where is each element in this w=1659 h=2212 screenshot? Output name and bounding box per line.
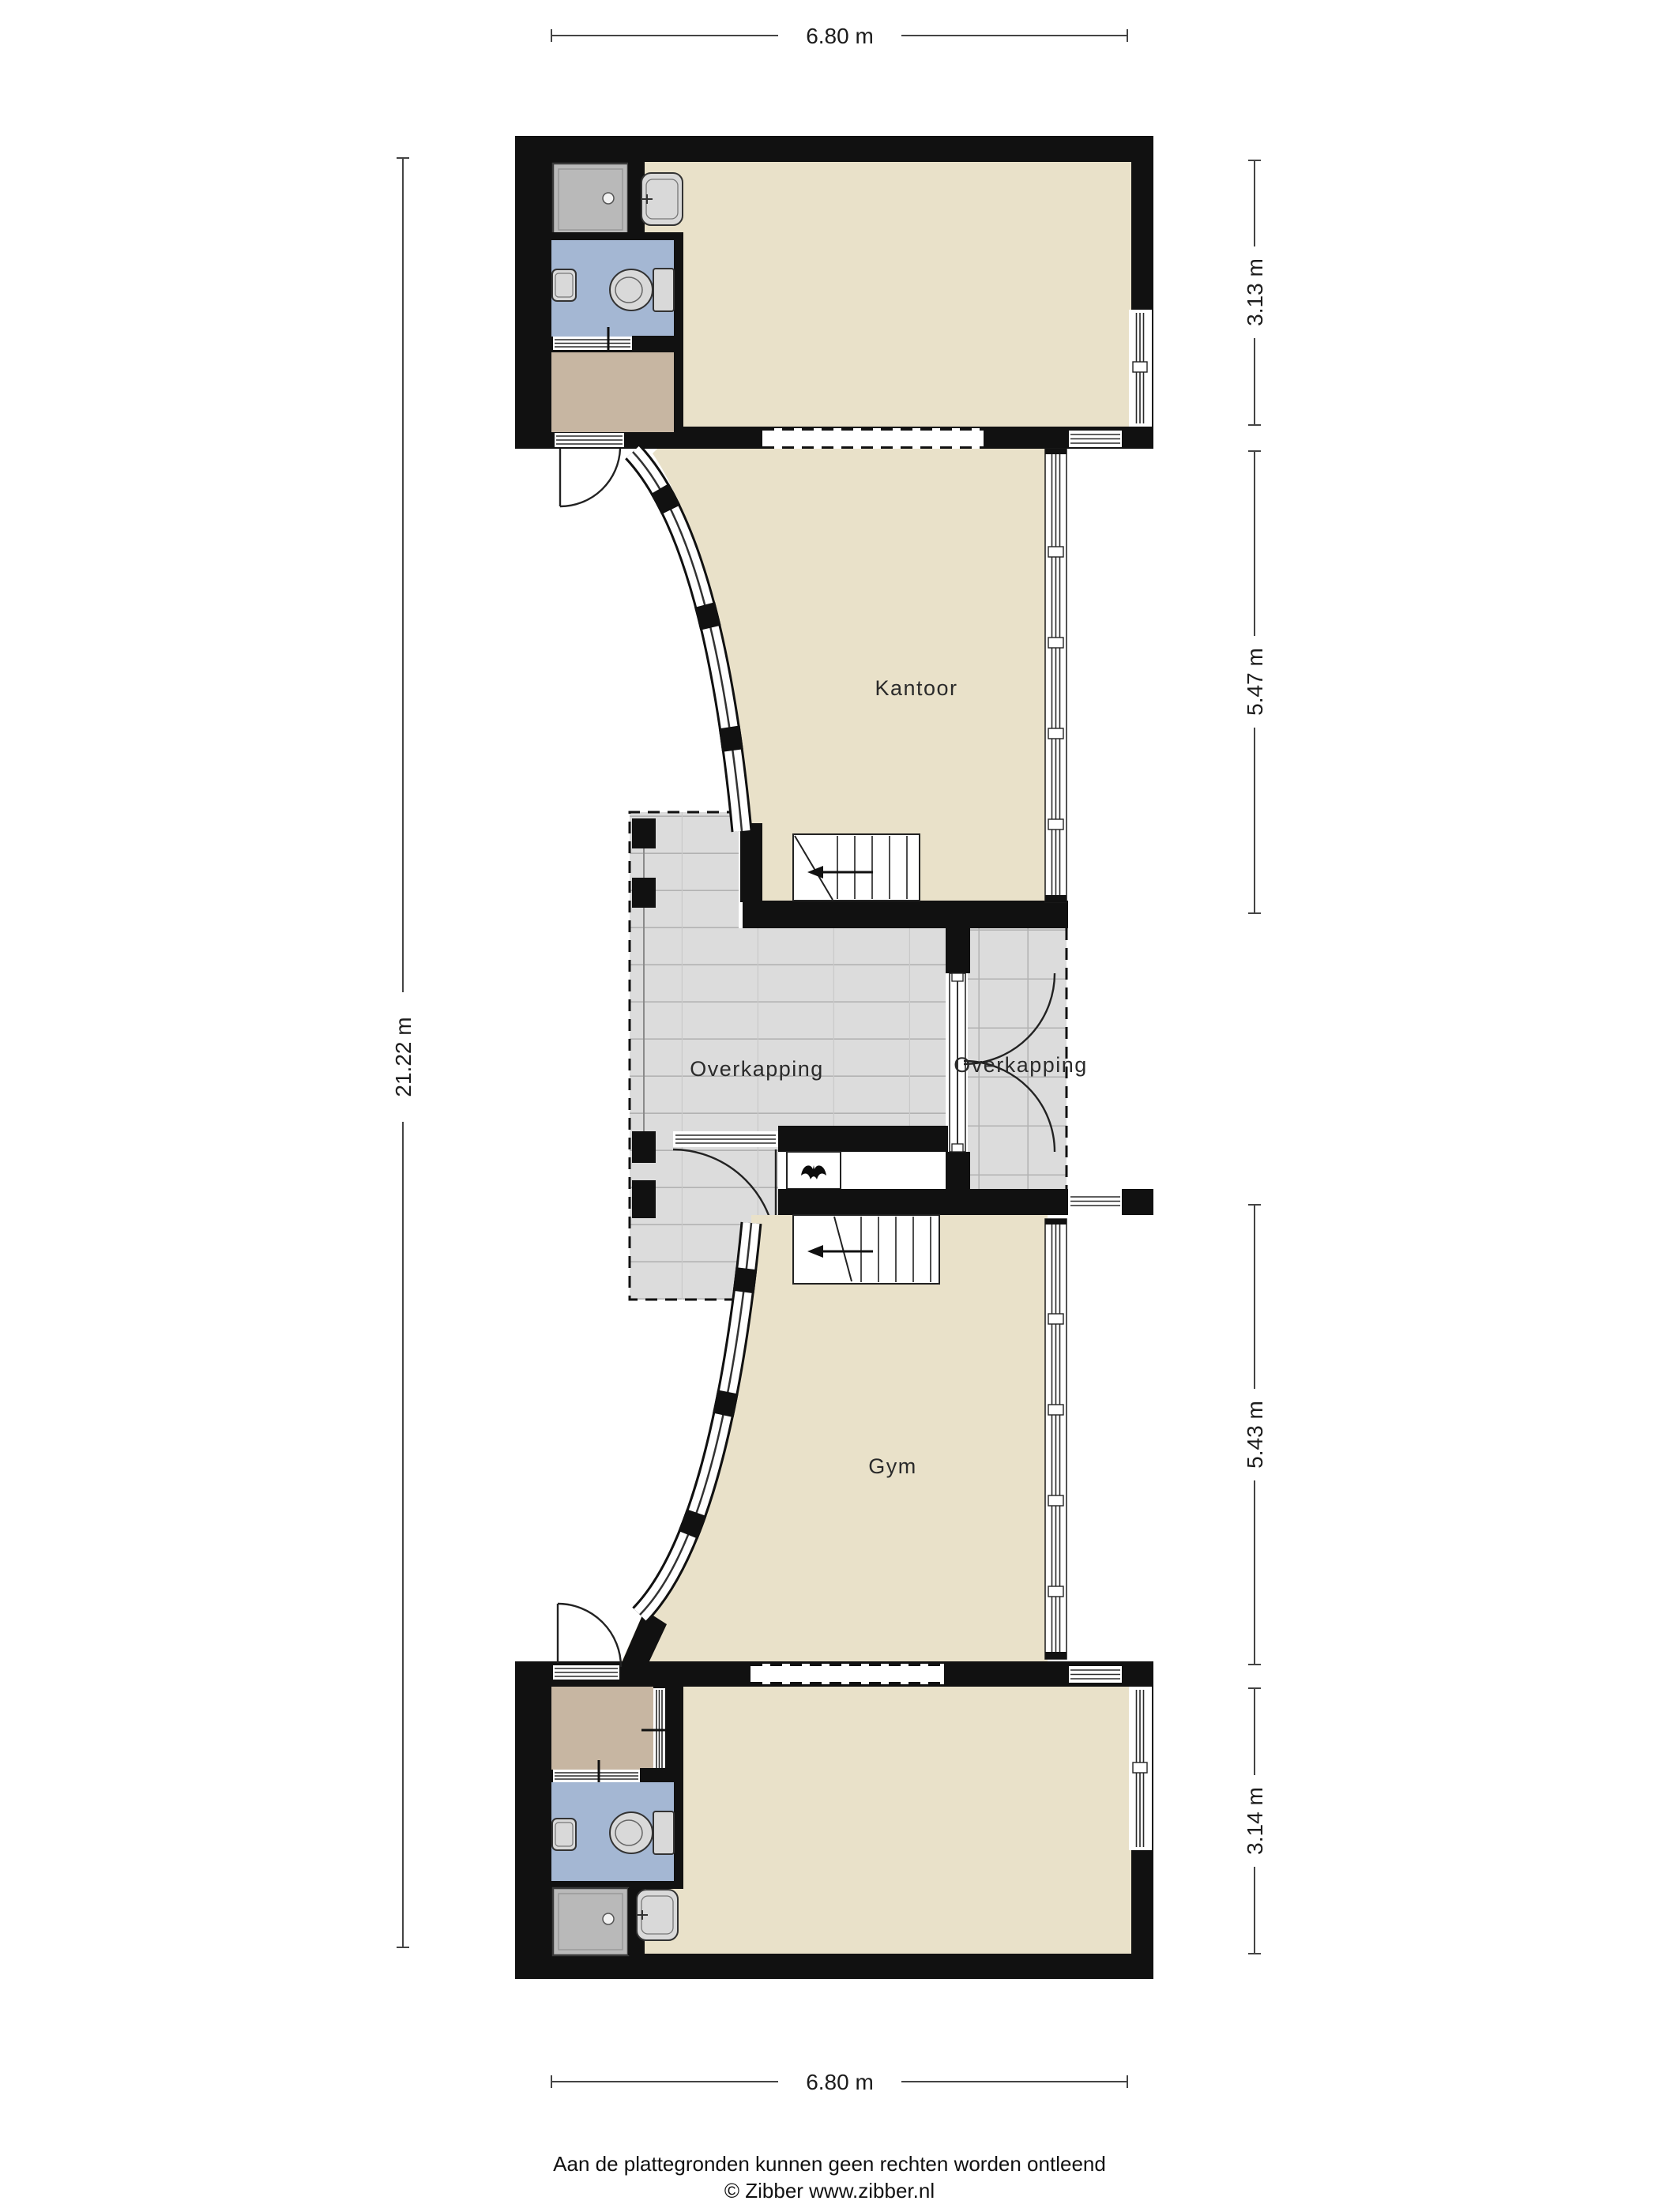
shower-icon	[553, 164, 628, 235]
open-connection	[762, 428, 984, 449]
room-label-overkapping-right: Overkapping	[954, 1053, 1088, 1077]
room-boven-1	[683, 162, 1131, 427]
shower-drain-icon	[603, 193, 614, 204]
shower-icon	[553, 1888, 628, 1955]
dim-label: 5.47 m	[1243, 648, 1267, 716]
dimension-bottom: 6.80 m	[551, 2067, 1127, 2097]
canopy-post	[632, 818, 656, 848]
bottom-block	[515, 1661, 1153, 1979]
door-swing-arc	[560, 449, 620, 506]
dimension-top: 6.80 m	[551, 21, 1127, 51]
floor-plan-canvas: 6.80 m 6.80 m 21.22 m 3.13 m 5.47 m 5.43…	[0, 0, 1659, 2212]
toilet-tank	[653, 1811, 674, 1854]
stairs-icon	[793, 834, 920, 901]
footer-disclaimer: Aan de plattegronden kunnen geen rechten…	[553, 2152, 1106, 2176]
window-mullion	[1048, 1586, 1063, 1597]
window-mullion	[1133, 362, 1147, 372]
door-jamb	[952, 973, 963, 981]
open-connection	[750, 1664, 944, 1684]
stairs-kantoor	[793, 834, 920, 901]
window-mullion	[1048, 547, 1063, 557]
room-label-gym: Gym	[868, 1454, 917, 1478]
toilet-tank	[653, 269, 674, 311]
window-mullion	[1048, 1405, 1063, 1415]
dim-label: 3.13 m	[1243, 258, 1267, 326]
footer-copyright: © Zibber www.zibber.nl	[724, 2179, 935, 2203]
room-label-kantoor: Kantoor	[875, 676, 957, 700]
window-mullion	[1048, 1314, 1063, 1324]
door-swing-arc	[558, 1604, 621, 1667]
canopy-post	[632, 1180, 656, 1218]
dim-label: 6.80 m	[806, 24, 874, 48]
room-beneden-1	[683, 1687, 1131, 1954]
dimension-right-2: 5.47 m	[1236, 451, 1273, 913]
floor-plan-page: 6.80 m 6.80 m 21.22 m 3.13 m 5.47 m 5.43…	[0, 0, 1659, 2212]
canopy-post	[632, 878, 656, 908]
window-cap	[1045, 895, 1066, 902]
room-berging-bottom	[551, 1687, 653, 1770]
dimension-right-4: 3.14 m	[1236, 1688, 1273, 1954]
bottom-entry-door	[558, 1604, 621, 1667]
interior-wall	[778, 1189, 1068, 1215]
interior-wall	[674, 237, 683, 337]
dimension-right-3: 5.43 m	[1236, 1205, 1273, 1665]
toilet-icon	[610, 269, 653, 310]
top-block	[515, 136, 1153, 449]
dim-label: 3.14 m	[1243, 1787, 1267, 1855]
room-label-overkapping-left: Overkapping	[690, 1057, 824, 1081]
window-mullion	[1048, 728, 1063, 739]
dim-label: 5.43 m	[1243, 1401, 1267, 1469]
glass-wall-right	[1045, 449, 1066, 902]
interior-wall	[743, 901, 1068, 928]
interior-wall	[632, 336, 674, 352]
stairs-gym	[793, 1215, 939, 1284]
window-cap	[1045, 449, 1066, 454]
glass-wall-right	[1045, 1219, 1066, 1659]
room-berging-top	[551, 352, 674, 432]
interior-wall	[674, 1782, 683, 1884]
top-entry-door	[560, 449, 620, 506]
interior-wall	[778, 1126, 948, 1152]
interior-wall	[551, 232, 683, 240]
dimension-right-1: 3.13 m	[1236, 160, 1273, 425]
dim-label: 6.80 m	[806, 2070, 874, 2094]
window-cap	[1045, 1219, 1066, 1224]
canopy-post	[632, 1131, 656, 1163]
dim-label: 21.22 m	[391, 1017, 416, 1097]
interior-wall	[640, 1768, 665, 1784]
toilet-icon	[610, 1812, 653, 1853]
shower-drain-icon	[603, 1913, 614, 1924]
door-jamb	[952, 1144, 963, 1152]
interior-wall	[740, 823, 762, 902]
dimension-left: 21.22 m	[384, 158, 422, 1947]
interior-wall	[665, 1687, 683, 1782]
interior-wall	[946, 916, 970, 973]
window-cap	[1045, 1652, 1066, 1659]
window-mullion	[1048, 1495, 1063, 1506]
window-mullion	[1133, 1762, 1147, 1773]
window-mullion	[1048, 819, 1063, 829]
corner-wall	[1122, 1189, 1153, 1215]
window-mullion	[1048, 638, 1063, 648]
